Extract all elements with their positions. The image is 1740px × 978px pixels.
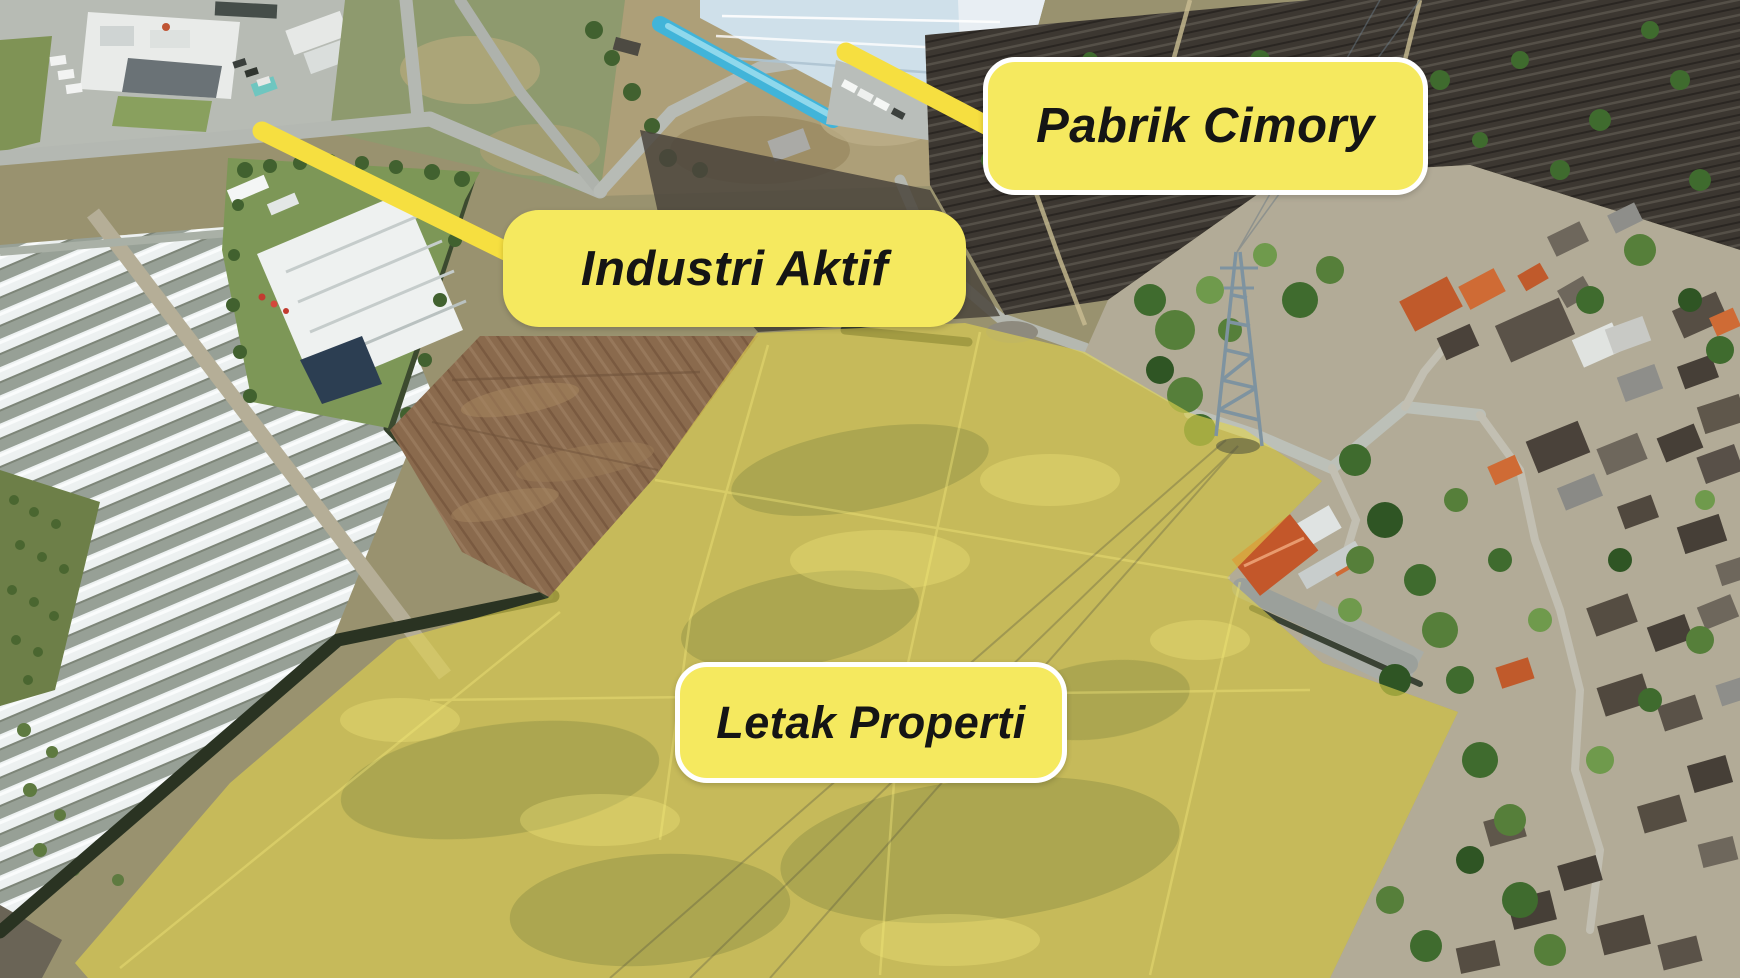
callout-letak-properti-label: Letak Properti (716, 697, 1026, 749)
callout-pabrik-cimory-label: Pabrik Cimory (1036, 98, 1375, 154)
callout-letak-properti: Letak Properti (675, 662, 1067, 783)
callout-industri-aktif-label: Industri Aktif (581, 241, 888, 297)
aerial-map: Pabrik Cimory Industri Aktif Letak Prope… (0, 0, 1740, 978)
aerial-photo (0, 0, 1740, 978)
callout-industri-aktif: Industri Aktif (503, 210, 966, 327)
callout-pabrik-cimory: Pabrik Cimory (983, 57, 1428, 195)
